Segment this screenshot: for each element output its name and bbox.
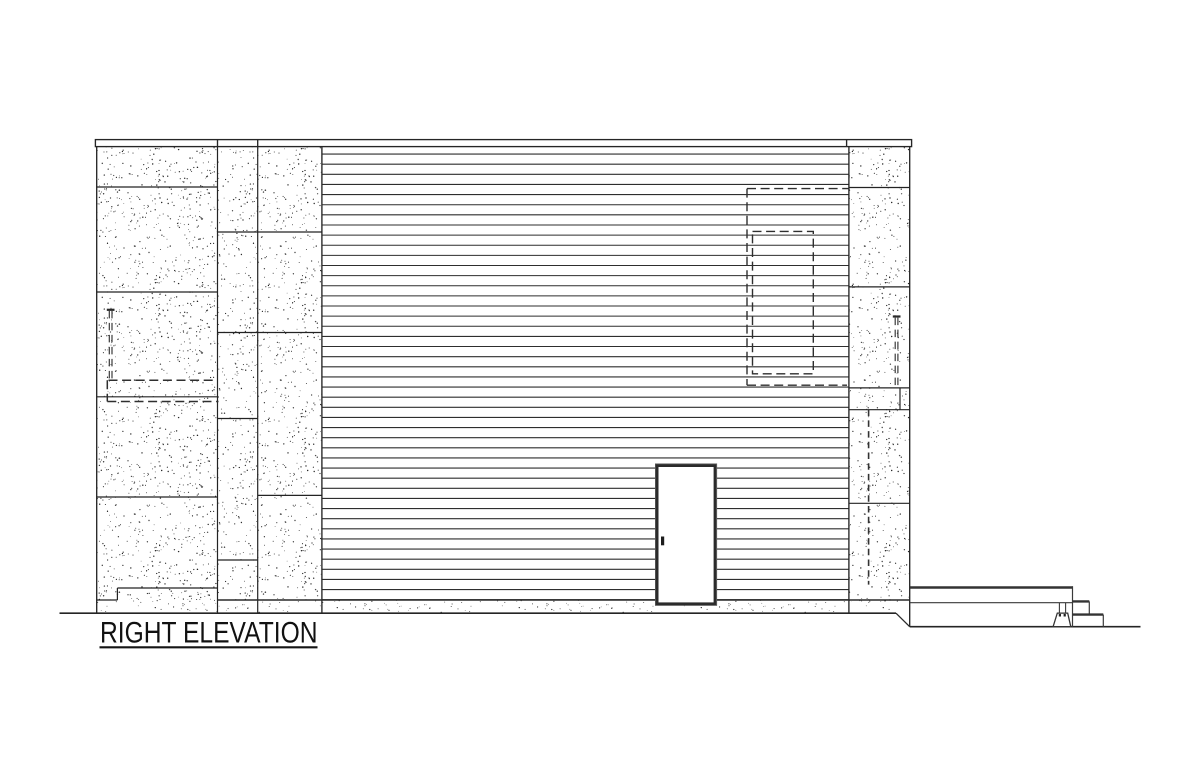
svg-text:RIGHT ELEVATION: RIGHT ELEVATION (100, 617, 318, 650)
